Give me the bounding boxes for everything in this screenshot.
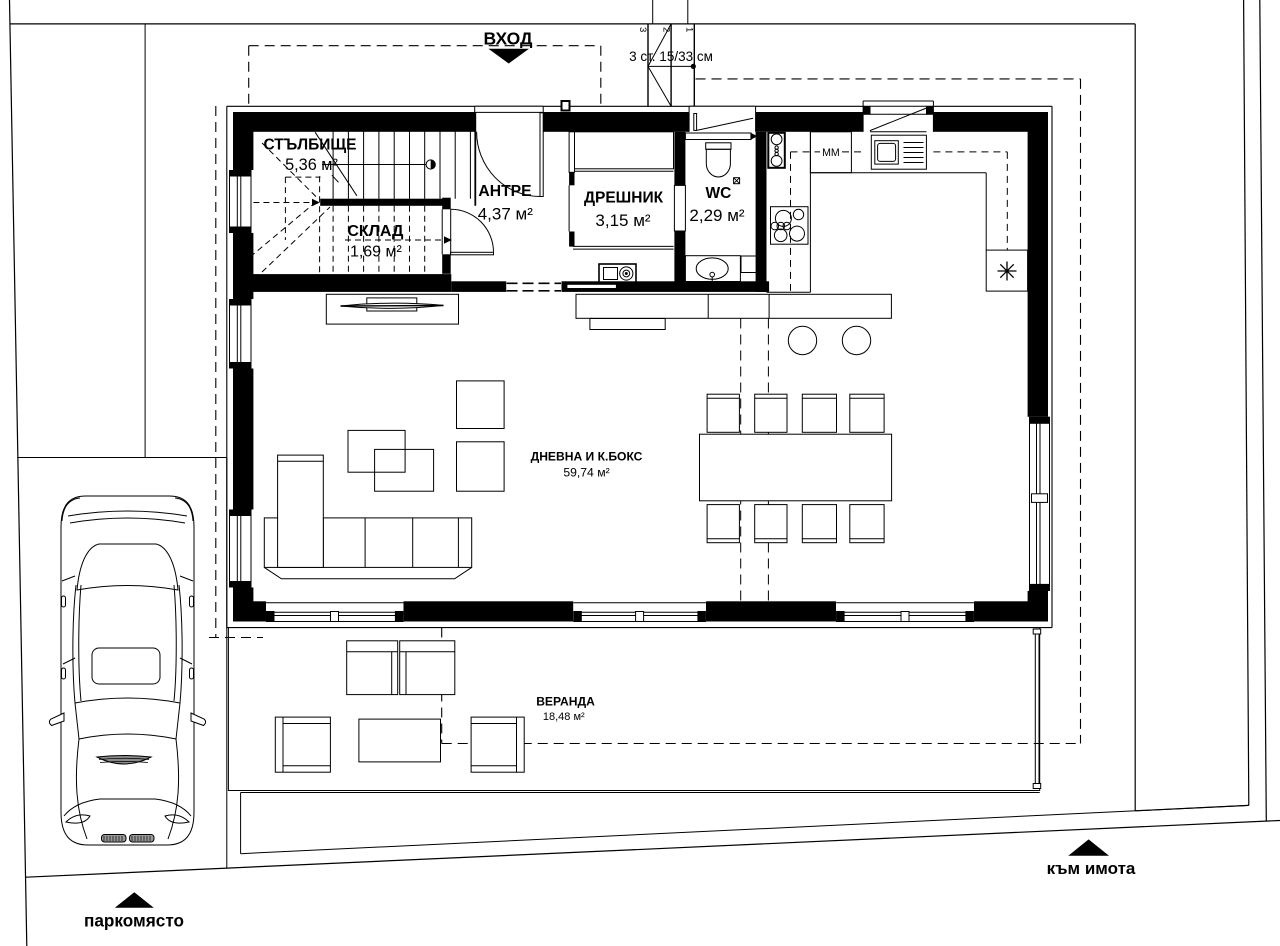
svg-text:1: 1 [684, 27, 695, 32]
svg-text:ММ: ММ [822, 147, 840, 159]
svg-text:ДНЕВНА И К.БОКС: ДНЕВНА И К.БОКС [531, 450, 643, 464]
svg-text:2: 2 [660, 27, 671, 32]
svg-text:4,37 м²: 4,37 м² [478, 205, 533, 224]
svg-text:3 ст. 15/33 см: 3 ст. 15/33 см [629, 49, 713, 64]
svg-text:3: 3 [637, 27, 648, 32]
svg-text:ВХОД: ВХОД [483, 29, 533, 49]
svg-text:СКЛАД: СКЛАД [347, 223, 404, 240]
svg-text:АНТРЕ: АНТРЕ [478, 183, 531, 200]
svg-text:1,69 м²: 1,69 м² [350, 243, 403, 260]
svg-text:паркомясто: паркомясто [84, 911, 184, 931]
svg-text:5,36 м²: 5,36 м² [285, 156, 338, 174]
svg-text:3,15 м²: 3,15 м² [595, 211, 650, 230]
svg-text:към имота: към имота [1047, 859, 1136, 878]
svg-text:2,29 м²: 2,29 м² [689, 206, 744, 225]
svg-text:ВЕРАНДА: ВЕРАНДА [536, 695, 595, 709]
svg-text:ДРЕШНИК: ДРЕШНИК [584, 190, 664, 207]
svg-text:18,48 м²: 18,48 м² [543, 711, 585, 723]
svg-text:WC: WC [705, 185, 731, 202]
svg-text:СТЪЛБИЩЕ: СТЪЛБИЩЕ [263, 137, 356, 154]
svg-text:59,74 м²: 59,74 м² [563, 465, 609, 479]
